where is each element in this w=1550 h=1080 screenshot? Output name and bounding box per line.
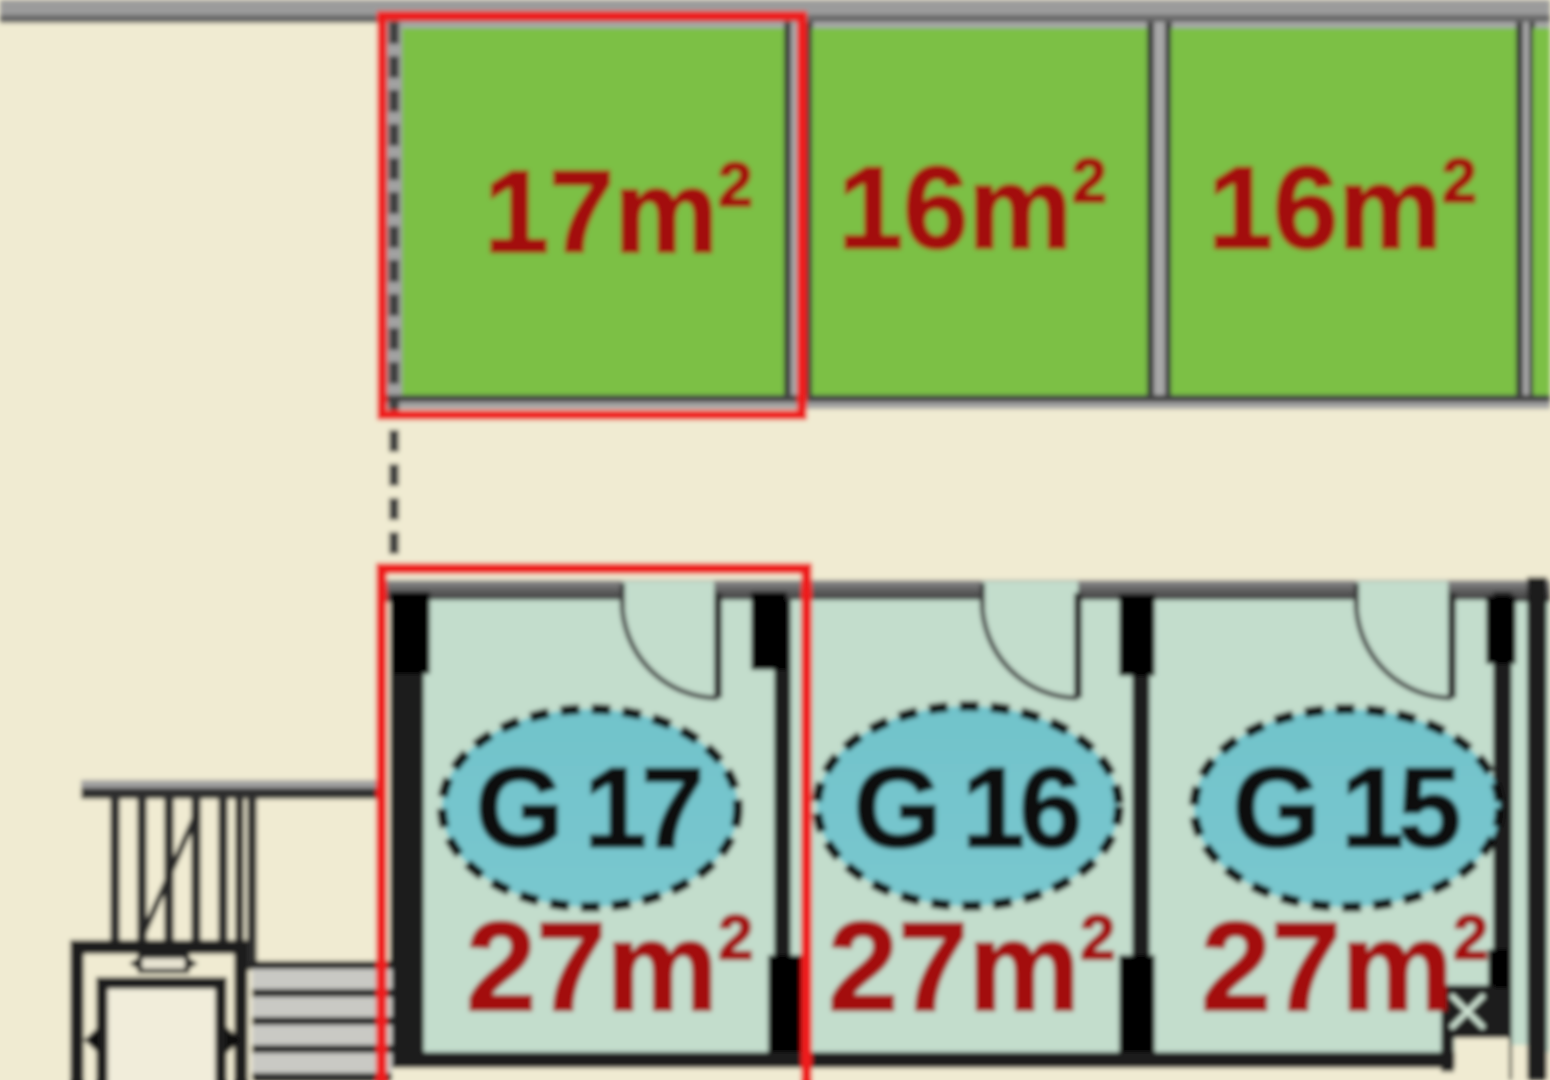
svg-text:17m2: 17m2: [484, 146, 753, 277]
svg-text:G 15: G 15: [1232, 745, 1459, 872]
svg-text:G 17: G 17: [475, 745, 700, 872]
svg-text:16m2: 16m2: [1208, 142, 1477, 273]
svg-text:27m2: 27m2: [1201, 896, 1488, 1037]
svg-text:G 16: G 16: [853, 745, 1079, 872]
svg-text:16m2: 16m2: [838, 142, 1107, 273]
svg-text:27m2: 27m2: [828, 896, 1115, 1037]
svg-text:27m2: 27m2: [466, 896, 753, 1037]
